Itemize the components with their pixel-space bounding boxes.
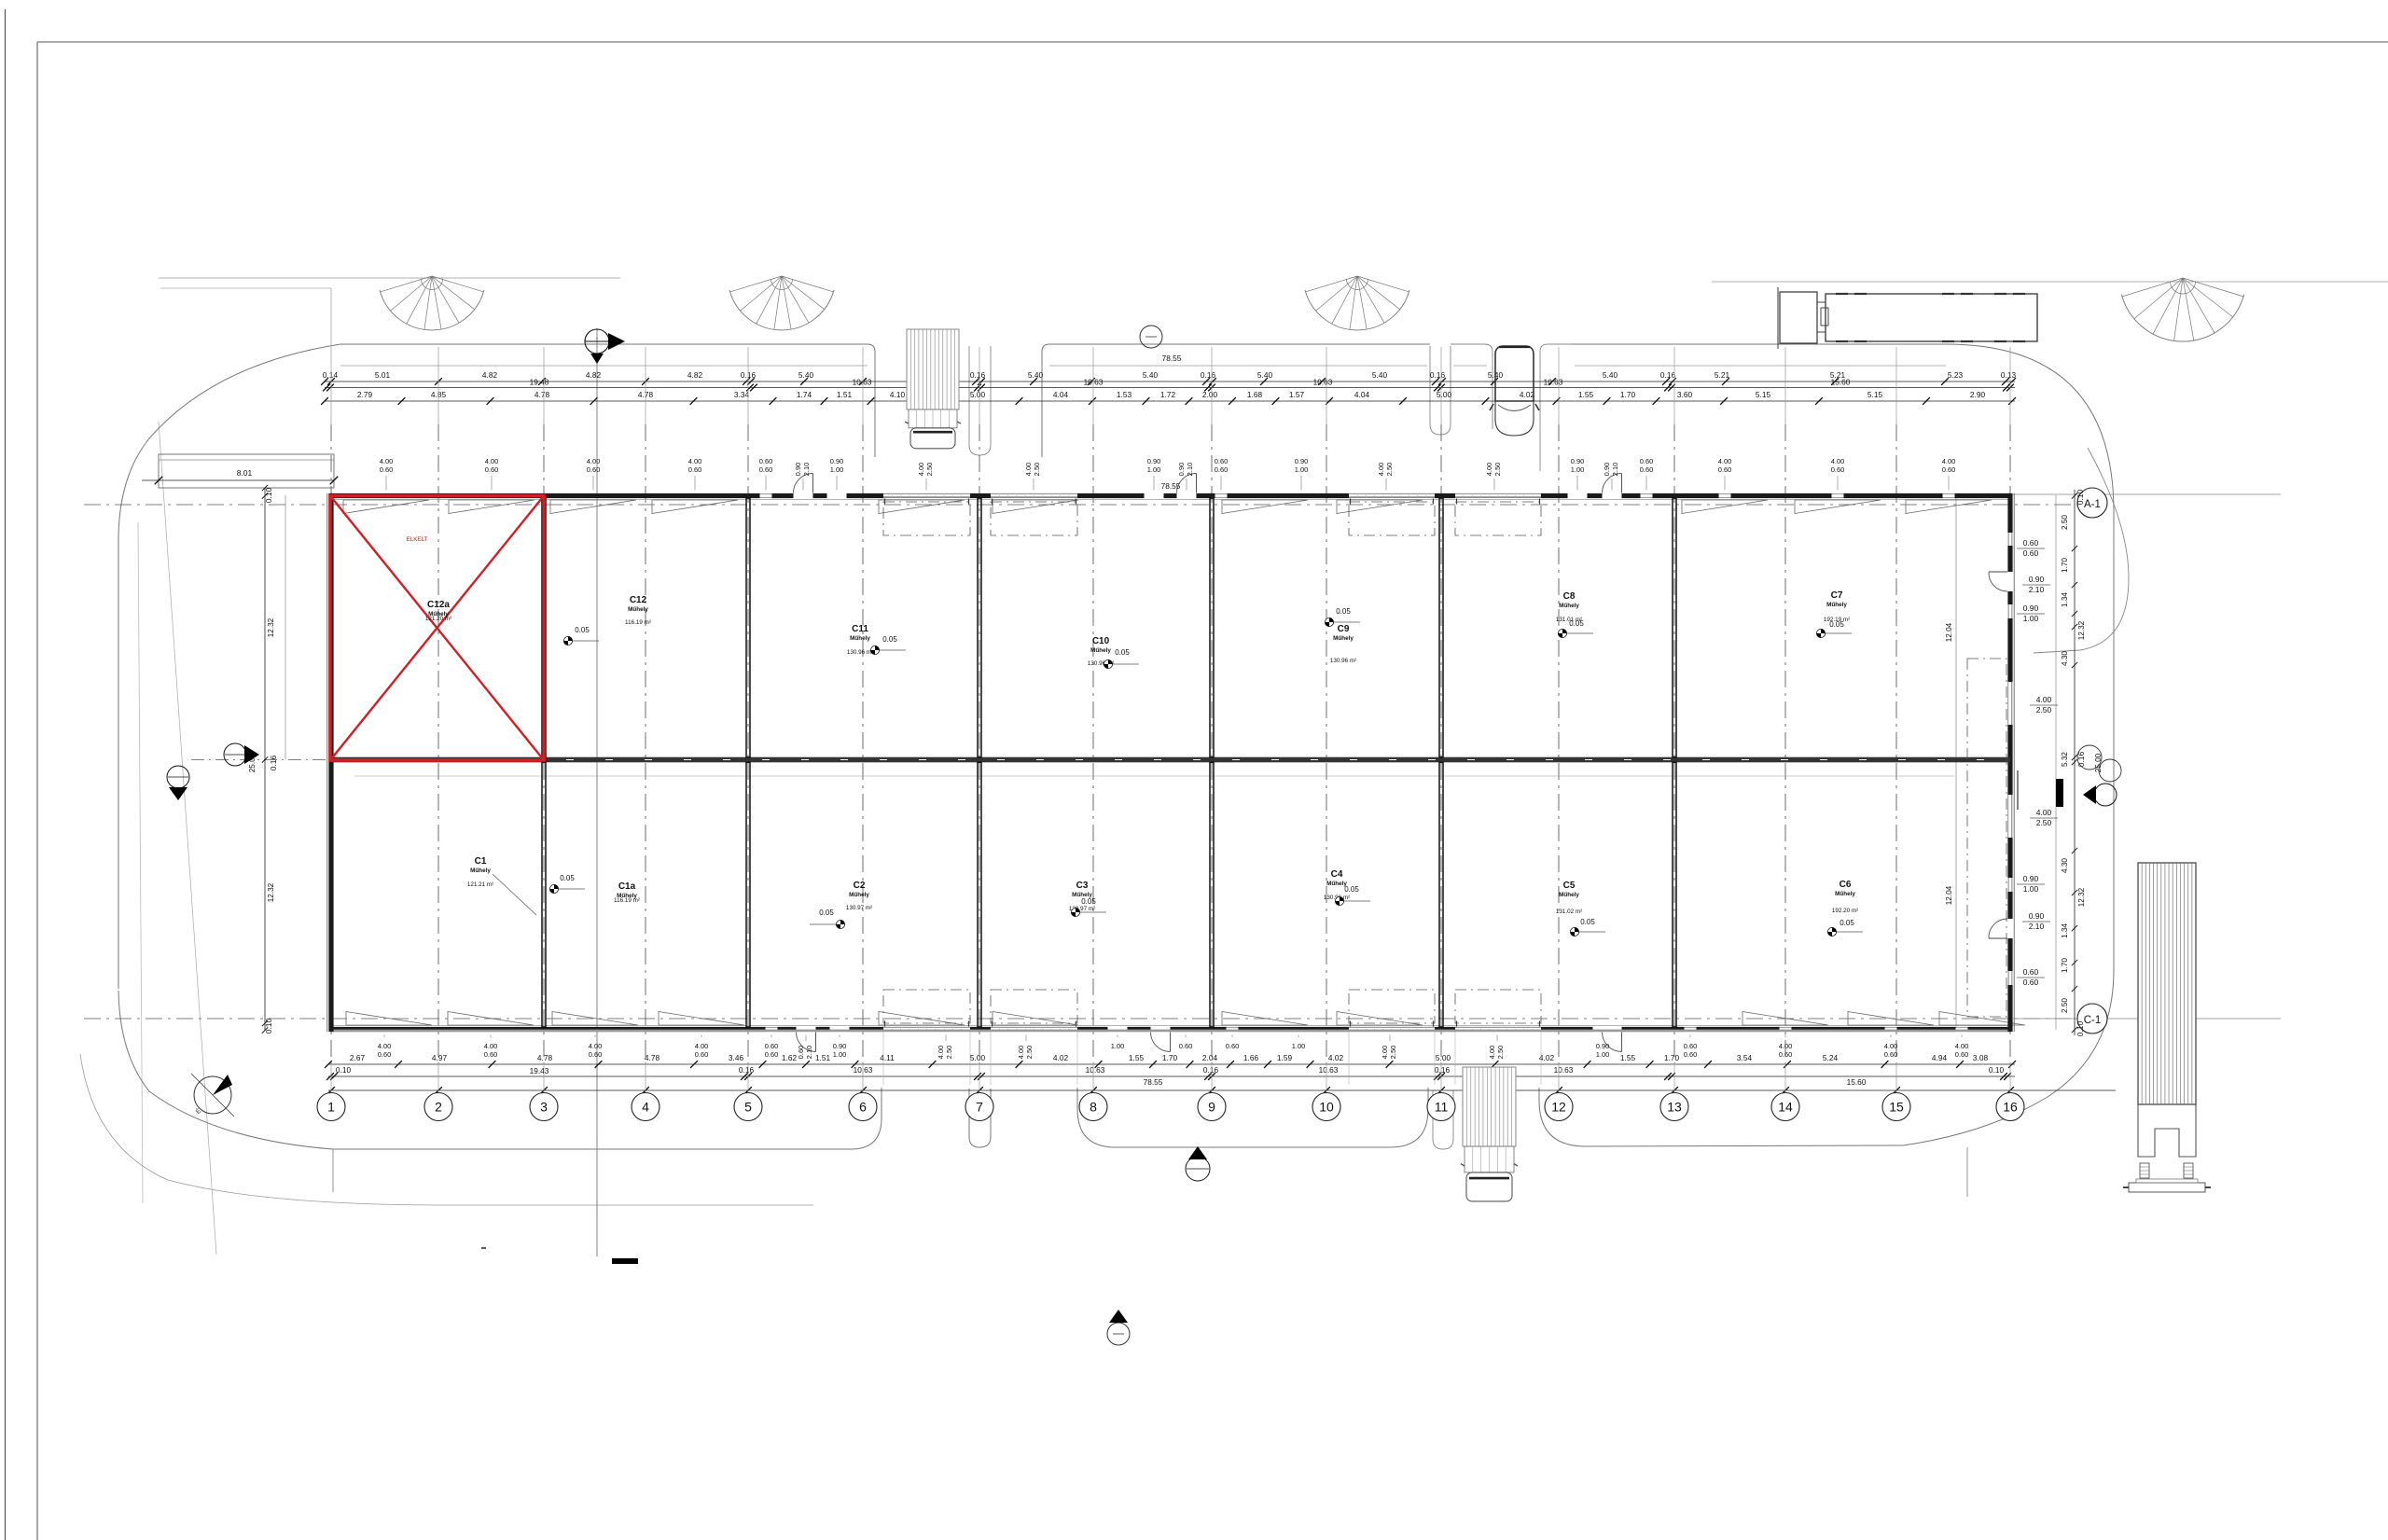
svg-text:0.10: 0.10 <box>264 1018 273 1034</box>
svg-text:0.90: 0.90 <box>2029 911 2045 921</box>
svg-text:0.60: 0.60 <box>1684 1050 1698 1059</box>
svg-text:0.14: 0.14 <box>323 370 339 380</box>
svg-text:4.04: 4.04 <box>1354 390 1370 399</box>
svg-text:2.50: 2.50 <box>2036 818 2052 827</box>
svg-text:C1: C1 <box>475 856 487 867</box>
svg-text:131.02 m²: 131.02 m² <box>1556 909 1582 915</box>
svg-text:4.00: 4.00 <box>589 1042 603 1050</box>
svg-text:78.55: 78.55 <box>1161 481 1181 491</box>
svg-text:0.60: 0.60 <box>688 465 702 474</box>
svg-text:12.32: 12.32 <box>2077 887 2086 907</box>
svg-text:2.10: 2.10 <box>802 463 811 477</box>
svg-text:1.00: 1.00 <box>1292 1042 1306 1050</box>
svg-text:15: 15 <box>1889 1100 1904 1115</box>
svg-text:0.05: 0.05 <box>1336 607 1351 616</box>
svg-text:121.21 m²: 121.21 m² <box>467 881 493 888</box>
svg-text:0.60: 0.60 <box>1779 1050 1793 1059</box>
svg-text:0.90: 0.90 <box>2023 874 2039 883</box>
svg-text:0.60: 0.60 <box>589 1050 603 1059</box>
svg-text:4.00: 4.00 <box>587 457 601 465</box>
svg-text:1: 1 <box>327 1100 335 1115</box>
svg-text:0.90: 0.90 <box>833 1042 847 1050</box>
svg-text:0.05: 0.05 <box>819 909 834 917</box>
svg-text:1.55: 1.55 <box>1620 1053 1636 1062</box>
svg-text:5.40: 5.40 <box>1603 370 1618 380</box>
svg-text:130.96 m²: 130.96 m² <box>1330 658 1356 664</box>
svg-text:5.15: 5.15 <box>1756 390 1771 399</box>
svg-text:12.04: 12.04 <box>1945 622 1953 642</box>
svg-text:4.97: 4.97 <box>432 1053 448 1062</box>
svg-text:4.04: 4.04 <box>1053 390 1069 399</box>
svg-text:0.05: 0.05 <box>1344 885 1359 894</box>
svg-text:2.10: 2.10 <box>805 1046 813 1060</box>
svg-text:C-1: C-1 <box>2084 1015 2102 1026</box>
svg-text:10.63: 10.63 <box>1319 1065 1339 1075</box>
svg-text:8.01: 8.01 <box>237 468 253 478</box>
svg-text:0.90: 0.90 <box>1596 1042 1610 1050</box>
svg-text:C12a: C12a <box>427 600 450 610</box>
svg-text:9: 9 <box>1208 1100 1215 1115</box>
svg-text:0.60: 0.60 <box>765 1050 779 1059</box>
svg-text:4.00: 4.00 <box>1377 463 1385 477</box>
svg-text:1.66: 1.66 <box>1243 1053 1259 1062</box>
svg-text:3.60: 3.60 <box>1677 390 1693 399</box>
svg-text:4.00: 4.00 <box>917 463 925 477</box>
svg-text:A-1: A-1 <box>2084 499 2101 510</box>
svg-text:0.60: 0.60 <box>1215 457 1229 465</box>
svg-text:3.08: 3.08 <box>1973 1053 1989 1062</box>
svg-text:4.00: 4.00 <box>484 1042 498 1050</box>
svg-text:4.00: 4.00 <box>1955 1042 1969 1050</box>
svg-text:116.19 m²: 116.19 m² <box>614 897 640 904</box>
svg-text:0.60: 0.60 <box>485 465 499 474</box>
svg-text:0.60: 0.60 <box>2023 967 2039 977</box>
svg-text:1.00: 1.00 <box>1596 1050 1610 1059</box>
svg-text:Műhely: Műhely <box>850 635 870 642</box>
svg-text:1.70: 1.70 <box>1620 390 1636 399</box>
svg-text:1.51: 1.51 <box>815 1053 831 1062</box>
svg-text:1.59: 1.59 <box>1277 1053 1293 1062</box>
svg-text:19.43: 19.43 <box>530 1066 549 1075</box>
svg-text:1.00: 1.00 <box>1147 465 1161 474</box>
svg-text:4.00: 4.00 <box>1485 463 1493 477</box>
svg-text:1.51: 1.51 <box>837 390 853 399</box>
svg-text:0.60: 0.60 <box>2023 978 2039 987</box>
svg-text:2.10: 2.10 <box>2029 922 2045 931</box>
svg-text:1.00: 1.00 <box>830 465 844 474</box>
svg-text:1.34: 1.34 <box>2061 592 2069 607</box>
svg-text:3.46: 3.46 <box>729 1053 744 1062</box>
svg-text:0.16: 0.16 <box>1660 370 1676 380</box>
svg-text:4.00: 4.00 <box>380 457 394 465</box>
svg-text:12.32: 12.32 <box>267 617 275 637</box>
svg-text:0.05: 0.05 <box>1840 919 1854 927</box>
svg-text:0.90: 0.90 <box>2029 575 2045 584</box>
svg-text:0.60: 0.60 <box>1684 1042 1698 1050</box>
svg-text:0.05: 0.05 <box>1569 619 1584 628</box>
svg-text:0.05: 0.05 <box>575 626 590 634</box>
svg-text:C7: C7 <box>1831 590 1843 601</box>
svg-text:4.00: 4.00 <box>1718 457 1732 465</box>
svg-text:0.05: 0.05 <box>560 874 575 882</box>
svg-text:2.04: 2.04 <box>1202 1053 1218 1062</box>
svg-text:1.62: 1.62 <box>782 1053 798 1062</box>
svg-text:4: 4 <box>642 1100 649 1115</box>
svg-text:2.10: 2.10 <box>1186 463 1194 477</box>
svg-text:0.05: 0.05 <box>1580 918 1595 926</box>
svg-text:10: 10 <box>1319 1100 1334 1115</box>
svg-text:4.00: 4.00 <box>1024 463 1033 477</box>
svg-text:Műhely: Műhely <box>1826 602 1847 608</box>
svg-text:19.48: 19.48 <box>530 378 549 387</box>
svg-text:2.50: 2.50 <box>1033 463 1041 477</box>
svg-text:2.90: 2.90 <box>1970 390 1986 399</box>
svg-text:0.05: 0.05 <box>1115 648 1130 657</box>
svg-text:130.96 m²: 130.96 m² <box>847 649 873 656</box>
svg-text:C12: C12 <box>630 595 647 605</box>
svg-text:0.60: 0.60 <box>1718 465 1732 474</box>
svg-text:-: - <box>596 336 598 341</box>
svg-text:0.90: 0.90 <box>2023 604 2039 613</box>
svg-text:C2: C2 <box>854 881 866 891</box>
svg-text:78.55: 78.55 <box>1144 1077 1163 1087</box>
svg-text:0.90: 0.90 <box>1571 457 1585 465</box>
svg-text:C6: C6 <box>1840 880 1852 890</box>
svg-text:0.90: 0.90 <box>830 457 844 465</box>
svg-text:8: 8 <box>1090 1100 1097 1115</box>
svg-text:11: 11 <box>1435 1100 1449 1115</box>
svg-text:78.55: 78.55 <box>1162 354 1182 363</box>
svg-text:12.32: 12.32 <box>2077 620 2086 640</box>
svg-text:0.60: 0.60 <box>1831 465 1845 474</box>
svg-text:10.63: 10.63 <box>1086 1065 1105 1075</box>
svg-text:2.50: 2.50 <box>1389 1046 1397 1060</box>
svg-text:C3: C3 <box>1076 881 1089 891</box>
svg-text:0.05: 0.05 <box>882 635 897 644</box>
svg-text:3: 3 <box>540 1100 548 1115</box>
svg-text:2.50: 2.50 <box>945 1046 953 1060</box>
svg-text:1.70: 1.70 <box>1162 1053 1178 1062</box>
svg-text:0.60: 0.60 <box>695 1050 709 1059</box>
svg-text:2: 2 <box>435 1100 442 1115</box>
svg-text:2.50: 2.50 <box>1496 1046 1505 1060</box>
svg-text:0.60: 0.60 <box>1942 465 1956 474</box>
svg-text:0.60: 0.60 <box>1226 1042 1240 1050</box>
svg-text:1.53: 1.53 <box>1117 390 1132 399</box>
svg-text:6: 6 <box>859 1100 867 1115</box>
svg-text:Műhely: Műhely <box>1559 603 1579 609</box>
svg-text:4.00: 4.00 <box>695 1042 709 1050</box>
svg-text:0.05: 0.05 <box>1829 620 1844 629</box>
svg-text:0.60: 0.60 <box>1640 465 1654 474</box>
svg-text:Műhely: Műhely <box>1090 647 1111 654</box>
svg-text:C1a: C1a <box>618 881 636 892</box>
svg-text:4.94: 4.94 <box>1932 1053 1948 1062</box>
svg-text:1.74: 1.74 <box>797 390 812 399</box>
svg-text:1.00: 1.00 <box>833 1050 847 1059</box>
svg-text:C10: C10 <box>1092 636 1110 646</box>
svg-text:2.79: 2.79 <box>357 390 373 399</box>
svg-text:0.60: 0.60 <box>484 1050 498 1059</box>
svg-text:0.60: 0.60 <box>2023 548 2039 558</box>
svg-text:5.40: 5.40 <box>1372 370 1388 380</box>
svg-text:130.97 m²: 130.97 m² <box>846 905 872 911</box>
svg-text:0.16: 0.16 <box>269 755 278 770</box>
svg-text:12: 12 <box>1551 1100 1566 1115</box>
svg-text:ELKELT: ELKELT <box>407 536 428 543</box>
svg-text:2.10: 2.10 <box>2029 585 2045 594</box>
svg-text:4.30: 4.30 <box>2061 651 2069 666</box>
svg-text:5.40: 5.40 <box>1143 370 1159 380</box>
svg-text:1.72: 1.72 <box>1160 390 1176 399</box>
svg-text:4.02: 4.02 <box>1539 1053 1555 1062</box>
svg-text:1.70: 1.70 <box>2061 558 2069 573</box>
svg-text:5.40: 5.40 <box>1257 370 1273 380</box>
svg-text:0.60: 0.60 <box>1179 1042 1193 1050</box>
svg-text:0.60: 0.60 <box>1884 1050 1898 1059</box>
svg-text:0.60: 0.60 <box>1640 457 1654 465</box>
svg-text:5.01: 5.01 <box>375 370 391 380</box>
svg-text:0.16: 0.16 <box>970 370 986 380</box>
svg-text:4.78: 4.78 <box>537 1053 553 1062</box>
svg-text:4.00: 4.00 <box>1942 457 1956 465</box>
svg-text:4.00: 4.00 <box>1779 1042 1793 1050</box>
svg-text:0.05: 0.05 <box>1081 897 1096 906</box>
svg-text:0.90: 0.90 <box>1295 457 1309 465</box>
svg-text:4.82: 4.82 <box>586 370 602 380</box>
svg-text:4.11: 4.11 <box>880 1053 895 1062</box>
svg-text:Műhely: Műhely <box>1333 635 1354 642</box>
svg-text:4.00: 4.00 <box>937 1046 945 1060</box>
svg-text:Műhely: Műhely <box>628 606 648 613</box>
svg-text:0.60: 0.60 <box>797 1046 805 1060</box>
svg-text:4.00: 4.00 <box>688 457 702 465</box>
svg-text:0.60: 0.60 <box>1215 465 1229 474</box>
svg-text:0.10: 0.10 <box>2076 1020 2085 1036</box>
svg-text:C5: C5 <box>1563 881 1576 891</box>
svg-text:15.60: 15.60 <box>1847 1077 1867 1087</box>
svg-text:5.40: 5.40 <box>1028 370 1044 380</box>
svg-text:0.16: 0.16 <box>1435 1065 1451 1075</box>
svg-text:2.50: 2.50 <box>2036 705 2052 715</box>
svg-text:2.67: 2.67 <box>350 1053 366 1062</box>
svg-text:5.00: 5.00 <box>970 1053 986 1062</box>
svg-text:0.90: 0.90 <box>1147 457 1161 465</box>
svg-text:0.90: 0.90 <box>1603 463 1611 477</box>
svg-text:1.55: 1.55 <box>1578 390 1594 399</box>
svg-text:0.60: 0.60 <box>587 465 601 474</box>
svg-text:4.78: 4.78 <box>535 390 550 399</box>
svg-text:C4: C4 <box>1331 869 1343 880</box>
svg-text:0.60: 0.60 <box>759 457 773 465</box>
svg-text:Műhely: Műhely <box>849 892 869 898</box>
svg-text:3.54: 3.54 <box>1737 1053 1753 1062</box>
svg-text:0.60: 0.60 <box>2023 538 2039 548</box>
svg-text:4.00: 4.00 <box>485 457 499 465</box>
svg-text:4.00: 4.00 <box>2036 695 2052 704</box>
svg-text:C9: C9 <box>1338 624 1350 634</box>
svg-text:4.82: 4.82 <box>687 370 703 380</box>
svg-text:3.34: 3.34 <box>734 390 750 399</box>
svg-text:2.10: 2.10 <box>1611 463 1619 477</box>
svg-text:0.60: 0.60 <box>378 1050 392 1059</box>
svg-text:1.00: 1.00 <box>1111 1042 1125 1050</box>
svg-text:121.20 m²: 121.20 m² <box>425 616 451 622</box>
svg-text:C8: C8 <box>1563 591 1576 602</box>
svg-text:5.40: 5.40 <box>798 370 814 380</box>
svg-text:4.30: 4.30 <box>2061 858 2069 873</box>
svg-text:2.50: 2.50 <box>1493 463 1502 477</box>
svg-text:7: 7 <box>976 1100 983 1115</box>
svg-text:0.60: 0.60 <box>1955 1050 1969 1059</box>
svg-text:0.16: 0.16 <box>1201 370 1216 380</box>
svg-text:4.00: 4.00 <box>1017 1046 1025 1060</box>
svg-text:4.00: 4.00 <box>2036 808 2052 817</box>
svg-text:5.23: 5.23 <box>1948 370 1964 380</box>
svg-text:2.50: 2.50 <box>2061 998 2069 1013</box>
svg-text:5.32: 5.32 <box>2061 752 2069 767</box>
svg-text:1.68: 1.68 <box>1247 390 1263 399</box>
svg-text:14: 14 <box>1778 1100 1793 1115</box>
svg-text:2.50: 2.50 <box>1385 463 1394 477</box>
svg-text:5.24: 5.24 <box>1823 1053 1839 1062</box>
svg-text:0.60: 0.60 <box>765 1042 779 1050</box>
svg-text:1.00: 1.00 <box>2023 884 2039 894</box>
svg-text:192.20 m²: 192.20 m² <box>1832 908 1858 914</box>
svg-text:1.00: 1.00 <box>1571 465 1585 474</box>
svg-text:0.90: 0.90 <box>1177 463 1186 477</box>
svg-text:Műhely: Műhely <box>470 867 491 874</box>
svg-text:4.00: 4.00 <box>1488 1046 1496 1060</box>
svg-text:0.10: 0.10 <box>336 1065 352 1075</box>
svg-text:12.04: 12.04 <box>1945 885 1953 905</box>
svg-text:2.50: 2.50 <box>925 463 934 477</box>
svg-text:4.00: 4.00 <box>1884 1042 1898 1050</box>
svg-text:12.32: 12.32 <box>267 882 275 902</box>
svg-text:13: 13 <box>1667 1100 1682 1115</box>
svg-text:4.82: 4.82 <box>482 370 498 380</box>
svg-text:1.70: 1.70 <box>2061 958 2069 973</box>
svg-text:0.60: 0.60 <box>380 465 394 474</box>
svg-text:Műhely: Műhely <box>1835 891 1855 897</box>
svg-text:5.00: 5.00 <box>1436 1053 1451 1062</box>
svg-text:10.63: 10.63 <box>1544 378 1563 387</box>
svg-text:0.90: 0.90 <box>794 463 802 477</box>
svg-text:5.00: 5.00 <box>970 390 986 399</box>
svg-text:0.10: 0.10 <box>264 487 273 503</box>
svg-text:1.70: 1.70 <box>1664 1053 1680 1062</box>
svg-text:5.21: 5.21 <box>1715 370 1730 380</box>
svg-text:4.02: 4.02 <box>1328 1053 1344 1062</box>
svg-text:116.19 m²: 116.19 m² <box>625 619 651 626</box>
svg-text:0.10: 0.10 <box>1989 1065 2005 1075</box>
svg-text:5.00: 5.00 <box>1437 390 1452 399</box>
svg-text:5: 5 <box>744 1100 752 1115</box>
svg-text:4.78: 4.78 <box>645 1053 660 1062</box>
svg-text:2.50: 2.50 <box>1025 1046 1034 1060</box>
svg-text:10.63: 10.63 <box>1313 378 1333 387</box>
svg-text:1.55: 1.55 <box>1129 1053 1145 1062</box>
svg-text:1.57: 1.57 <box>1289 390 1305 399</box>
svg-text:1.34: 1.34 <box>2061 923 2069 938</box>
svg-text:0.60: 0.60 <box>759 465 773 474</box>
svg-text:5.15: 5.15 <box>1867 390 1883 399</box>
svg-text:4.10: 4.10 <box>890 390 906 399</box>
svg-text:4.00: 4.00 <box>1381 1046 1389 1060</box>
svg-text:10.63: 10.63 <box>1554 1065 1574 1075</box>
svg-text:16: 16 <box>2003 1100 2018 1115</box>
svg-text:4.02: 4.02 <box>1520 390 1535 399</box>
svg-text:C11: C11 <box>852 624 868 634</box>
svg-text:Műhely: Műhely <box>1559 892 1579 898</box>
svg-text:0.10: 0.10 <box>2076 489 2085 505</box>
svg-text:4.00: 4.00 <box>1831 457 1845 465</box>
svg-text:1.00: 1.00 <box>2023 614 2039 623</box>
svg-text:2.50: 2.50 <box>2061 515 2069 530</box>
svg-text:4.00: 4.00 <box>378 1042 392 1050</box>
svg-text:4.02: 4.02 <box>1053 1053 1069 1062</box>
svg-text:0.16: 0.16 <box>1430 370 1446 380</box>
svg-text:1.00: 1.00 <box>1295 465 1309 474</box>
